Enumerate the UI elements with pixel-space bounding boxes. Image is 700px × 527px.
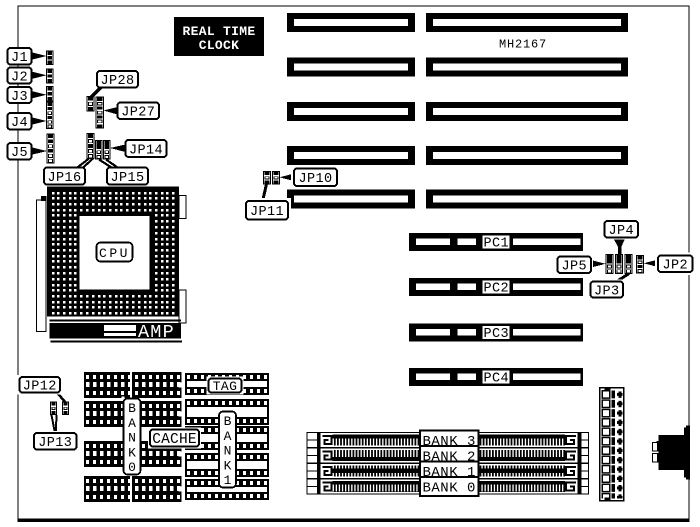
svg-text:JP10: JP10 — [298, 172, 332, 187]
svg-text:JP16: JP16 — [47, 171, 81, 186]
svg-text:JP15: JP15 — [110, 171, 144, 186]
svg-text:JP11: JP11 — [250, 205, 284, 220]
svg-text:A: A — [224, 429, 232, 444]
svg-text:B: B — [128, 401, 136, 416]
svg-text:0: 0 — [128, 460, 136, 475]
svg-text:REAL TIME: REAL TIME — [183, 24, 256, 39]
svg-text:J3: J3 — [11, 90, 28, 105]
svg-text:BANK 0: BANK 0 — [422, 480, 475, 496]
svg-text:A: A — [128, 416, 136, 431]
svg-text:PC2: PC2 — [483, 282, 509, 297]
svg-text:JP3: JP3 — [594, 284, 620, 299]
svg-text:CACHE: CACHE — [152, 432, 197, 448]
svg-text:MH2167: MH2167 — [499, 38, 547, 52]
svg-text:JP12: JP12 — [23, 380, 57, 395]
svg-text:PC4: PC4 — [483, 372, 509, 387]
svg-text:J4: J4 — [11, 116, 28, 131]
svg-text:CPU: CPU — [99, 246, 130, 261]
svg-text:AMP: AMP — [138, 322, 175, 343]
svg-text:JP28: JP28 — [100, 74, 134, 89]
svg-text:PC3: PC3 — [483, 327, 509, 342]
svg-text:N: N — [128, 431, 136, 446]
svg-text:1: 1 — [224, 473, 232, 488]
svg-text:JP14: JP14 — [129, 143, 163, 158]
svg-text:JP27: JP27 — [121, 106, 155, 121]
svg-text:JP2: JP2 — [662, 259, 688, 274]
svg-text:J2: J2 — [11, 70, 28, 85]
svg-text:K: K — [224, 458, 232, 473]
svg-text:PC1: PC1 — [483, 237, 509, 252]
svg-text:K: K — [128, 445, 136, 460]
svg-text:JP5: JP5 — [561, 260, 587, 275]
svg-text:TAG: TAG — [213, 379, 238, 394]
svg-text:JP13: JP13 — [38, 436, 72, 451]
svg-text:J1: J1 — [11, 51, 28, 66]
svg-text:J5: J5 — [11, 146, 28, 161]
svg-text:JP4: JP4 — [608, 224, 634, 239]
svg-text:CLOCK: CLOCK — [199, 38, 240, 53]
svg-text:B: B — [224, 414, 232, 429]
svg-text:N: N — [224, 444, 232, 459]
